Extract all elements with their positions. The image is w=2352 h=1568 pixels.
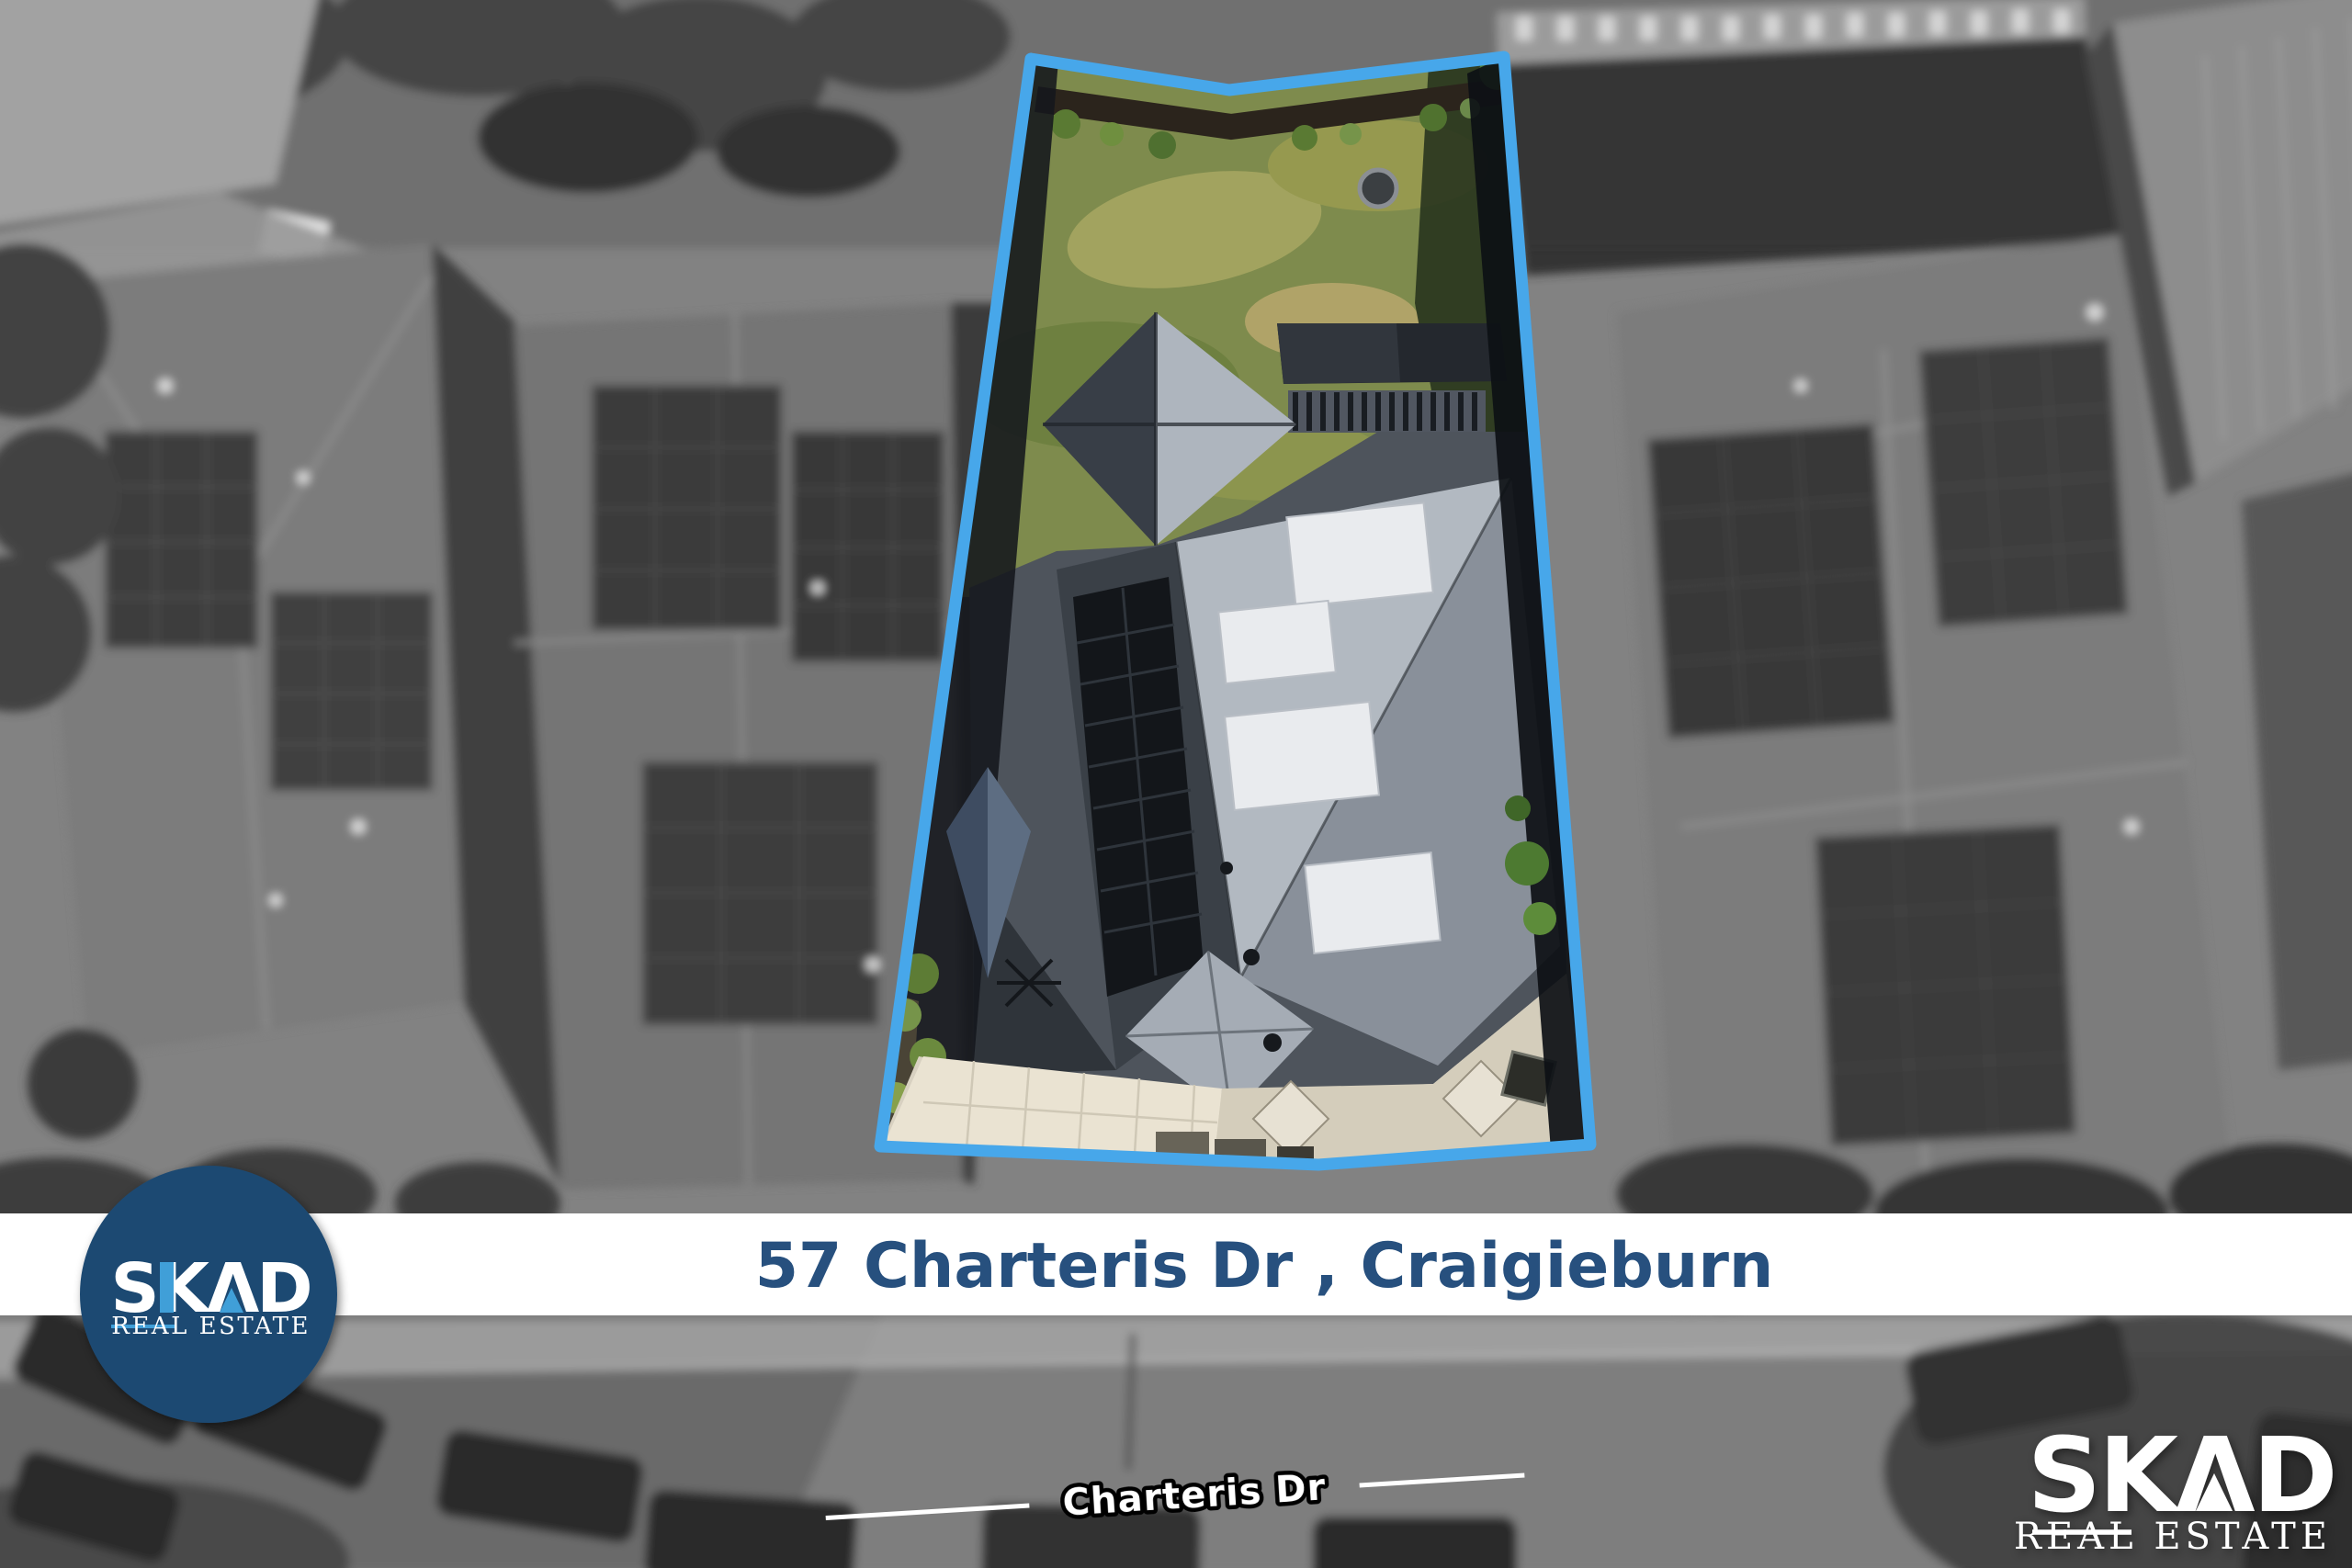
badge-k-accent bbox=[160, 1262, 174, 1313]
screenshot: Charteris Dr 57 Charteris Dr , Craigiebu… bbox=[0, 0, 2352, 1568]
badge-tagline: REAL ESTATE bbox=[111, 1313, 311, 1340]
car bbox=[645, 1490, 857, 1568]
roof-vent bbox=[811, 581, 824, 594]
fire-pit bbox=[1360, 170, 1396, 207]
address-banner: 57 Charteris Dr , Craigieburn bbox=[0, 1213, 2352, 1315]
alfresco-roof-lit bbox=[1277, 323, 1400, 384]
tree-shadow-mass bbox=[1498, 37, 2122, 276]
skad-badge: SKΛD REAL ESTATE bbox=[80, 1166, 337, 1423]
watermark-tagline: REAL ESTATE bbox=[2014, 1516, 2332, 1558]
solar-array bbox=[1648, 424, 1894, 738]
solar-array bbox=[593, 386, 781, 629]
skad-watermark: SKΛD REAL ESTATE bbox=[2014, 1416, 2335, 1558]
roof-vent bbox=[865, 957, 880, 972]
solar-array bbox=[1815, 825, 2075, 1145]
solar-array bbox=[271, 592, 432, 790]
solar-array bbox=[792, 432, 944, 661]
car bbox=[1314, 1517, 1516, 1568]
solar-array bbox=[106, 432, 257, 648]
solar-array bbox=[643, 762, 877, 1024]
solar-array bbox=[1920, 338, 2127, 626]
pergola-slats bbox=[1288, 390, 1486, 433]
address-text: 57 Charteris Dr , Craigieburn bbox=[755, 1230, 1774, 1303]
